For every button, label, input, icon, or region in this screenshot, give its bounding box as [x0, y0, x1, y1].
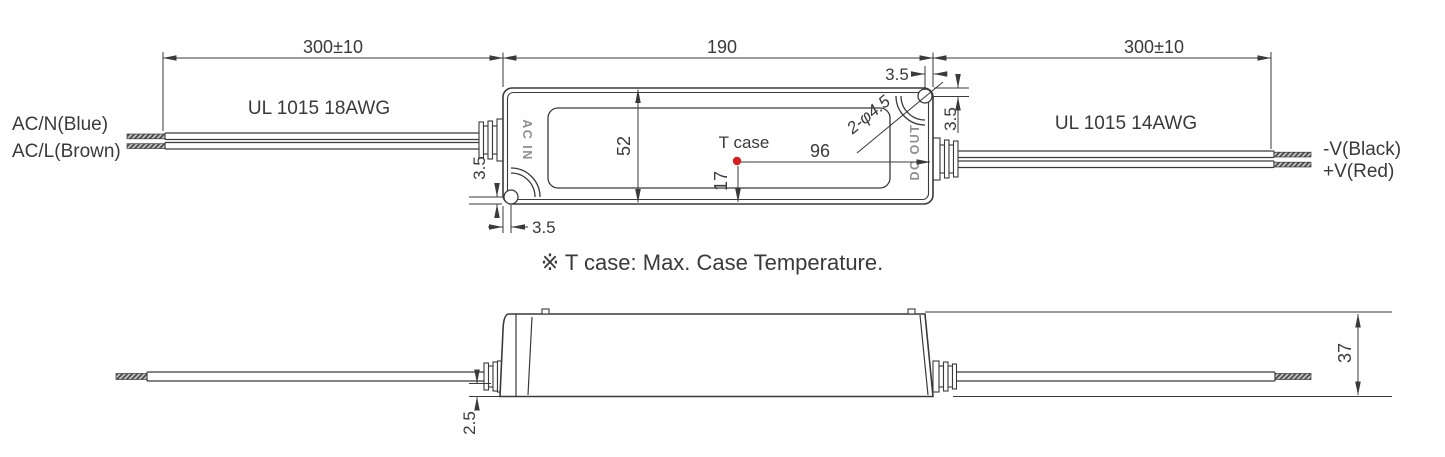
side-top-tab-right: [908, 309, 915, 314]
dim-hole-tr-h: 3.5: [885, 65, 909, 84]
dim-tcase-vertical: 17: [711, 171, 731, 191]
side-output-gland: [933, 361, 957, 392]
output-wire-negative-stripped-tip: [1274, 152, 1311, 157]
dim-hole-bl-h: 3.5: [532, 218, 556, 237]
output-wire-spec: UL 1015 14AWG: [1055, 113, 1197, 134]
side-view: 2.5 37: [116, 309, 1392, 435]
output-wires: [957, 151, 1311, 168]
input-wire-line: [165, 143, 497, 150]
side-top-tab-left: [542, 309, 549, 314]
side-output-wire: [956, 372, 1311, 381]
dim-wire-offset: 2.5: [460, 411, 479, 435]
tcase-label: T case: [719, 133, 770, 152]
dim-hole-bl-v: 3.5: [470, 156, 489, 180]
side-input-wire: [116, 372, 485, 381]
dim-side-height: 37: [1335, 343, 1355, 363]
output-wire-positive-stripped-tip: [1274, 162, 1311, 167]
output-wire-negative: [957, 151, 1274, 158]
dim-right-wire-length: 300±10: [1124, 37, 1184, 57]
dim-hole-tr-v: 3.5: [941, 107, 960, 131]
input-wire-line-stripped-tip: [127, 144, 165, 149]
dim-hole-tr-v-group: 3.5: [932, 76, 969, 133]
dim-hole-bl-v-group: 3.5: [469, 156, 504, 216]
input-cable-gland: [479, 119, 504, 161]
output-cable-gland: [933, 138, 958, 180]
port-label-dc-out: DC OUT: [908, 124, 922, 181]
side-input-wire-stripped-tip: [116, 374, 147, 380]
tcase-note: ※ T case: Max. Case Temperature.: [541, 250, 883, 275]
output-wire-positive: [957, 161, 1274, 168]
case-body-side-view: [500, 309, 933, 397]
dim-body-width: 52: [614, 136, 634, 156]
mechanical-drawing-page: AC IN DC OUT T case 300±10 190 300±10 52: [0, 0, 1445, 457]
input-wire-spec: UL 1015 18AWG: [248, 98, 390, 119]
input-wire-neutral: [165, 133, 497, 140]
input-label-neutral: AC/N(Blue): [12, 114, 108, 135]
dim-tcase-horizontal: 96: [810, 141, 830, 161]
dim-hole-bl-h-group: 3.5: [488, 205, 556, 237]
top-view: AC IN DC OUT T case 300±10 190 300±10 52: [12, 37, 1401, 237]
dim-body-length: 190: [707, 37, 737, 57]
power-supply-dimension-drawing: AC IN DC OUT T case 300±10 190 300±10 52: [0, 0, 1445, 457]
dim-left-wire-length: 300±10: [303, 37, 363, 57]
output-label-negative: -V(Black): [1323, 139, 1401, 160]
input-wires: [127, 133, 497, 149]
port-label-ac-in: AC IN: [520, 119, 534, 161]
side-output-wire-stripped-tip: [1275, 374, 1311, 380]
mounting-hole-bottom-left: [504, 190, 518, 204]
dim-side-height-group: 37: [925, 312, 1392, 397]
input-label-line: AC/L(Brown): [12, 141, 121, 162]
tcase-dot: [733, 157, 741, 165]
output-label-positive: +V(Red): [1323, 161, 1394, 182]
input-wire-neutral-stripped-tip: [127, 134, 165, 139]
